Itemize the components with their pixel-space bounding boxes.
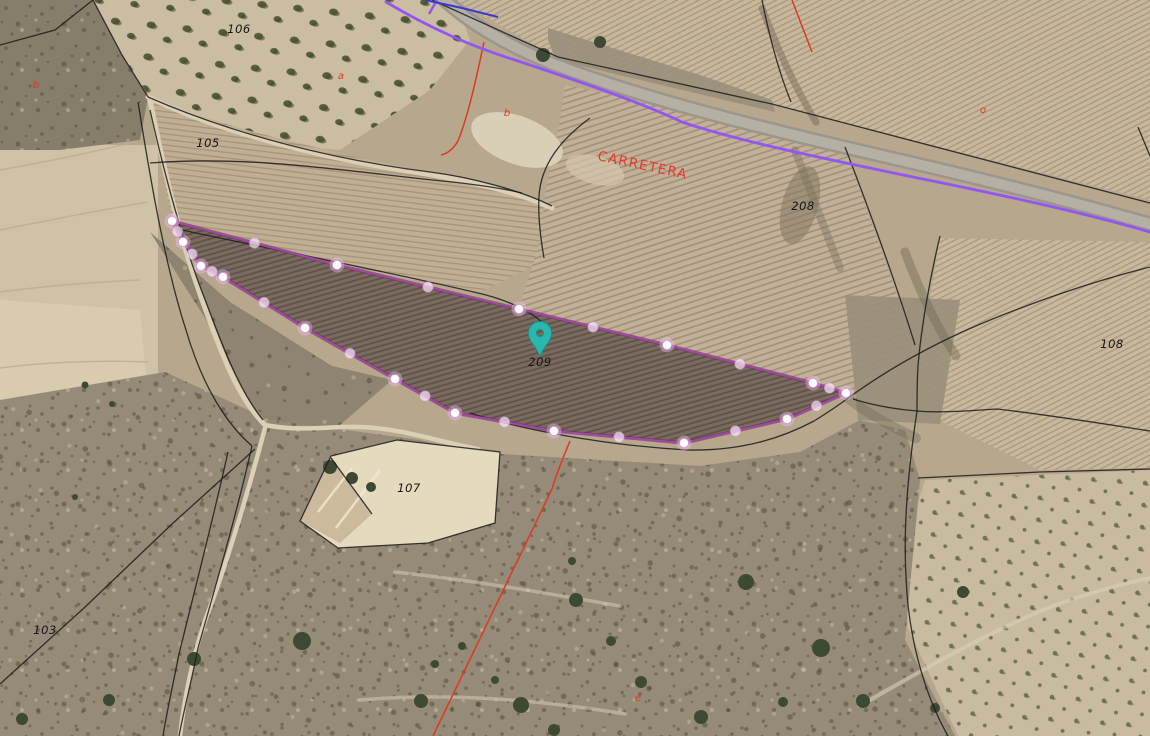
- parcel-midpoint-handle[interactable]: [259, 297, 269, 307]
- parcel-vertex-handle[interactable]: [167, 216, 176, 225]
- parcel-number-label: 105: [196, 136, 219, 150]
- parcel-vertex-handle[interactable]: [218, 272, 227, 281]
- parcel-number-label: 108: [1100, 337, 1123, 351]
- use-code-label: b: [33, 80, 39, 91]
- parcel-vertex-handle[interactable]: [841, 388, 850, 397]
- parcel-vertex-handle[interactable]: [450, 408, 459, 417]
- parcel-vertex-handle[interactable]: [178, 237, 187, 246]
- parcel-midpoint-handle[interactable]: [187, 249, 197, 259]
- parcel-number-label: 107: [397, 481, 421, 495]
- parcel-vertex-handle[interactable]: [332, 260, 341, 269]
- map-canvas[interactable]: Aerial cadastral map view with selected …: [0, 0, 1150, 736]
- parcel-midpoint-handle[interactable]: [730, 426, 740, 436]
- parcel-midpoint-handle[interactable]: [735, 359, 745, 369]
- parcel-vertex-handle[interactable]: [549, 426, 558, 435]
- parcel-vertex-handle[interactable]: [196, 261, 205, 270]
- terrain-grove-bottomright-trees: [905, 470, 1150, 736]
- parcel-vertex-handle[interactable]: [782, 414, 791, 423]
- parcel-midpoint-handle[interactable]: [824, 383, 834, 393]
- use-code-label: e: [635, 693, 641, 704]
- parcel-vertex-handle[interactable]: [300, 323, 309, 332]
- use-code-label: o: [980, 105, 986, 116]
- parcel-vertex-handle[interactable]: [514, 304, 523, 313]
- map-viewport[interactable]: Aerial cadastral map view with selected …: [0, 0, 1150, 736]
- parcel-midpoint-handle[interactable]: [345, 348, 355, 358]
- parcel-number-label: 106: [227, 22, 250, 36]
- use-code-label: b: [504, 108, 510, 119]
- parcel-number-label: 103: [33, 623, 56, 637]
- use-code-label: a: [338, 71, 344, 82]
- parcel-vertex-handle[interactable]: [808, 378, 817, 387]
- parcel-vertex-handle[interactable]: [679, 438, 688, 447]
- parcel-vertex-handle[interactable]: [662, 340, 671, 349]
- parcel-midpoint-handle[interactable]: [207, 266, 217, 276]
- parcel-midpoint-handle[interactable]: [811, 401, 821, 411]
- parcel-midpoint-handle[interactable]: [420, 391, 430, 401]
- parcel-midpoint-handle[interactable]: [499, 417, 509, 427]
- parcel-midpoint-handle[interactable]: [614, 432, 624, 442]
- parcel-number-label: 208: [791, 199, 814, 213]
- parcel-midpoint-handle[interactable]: [588, 322, 598, 332]
- parcel-midpoint-handle[interactable]: [423, 282, 433, 292]
- parcel-vertex-handle[interactable]: [390, 374, 399, 383]
- parcel-midpoint-handle[interactable]: [249, 238, 259, 248]
